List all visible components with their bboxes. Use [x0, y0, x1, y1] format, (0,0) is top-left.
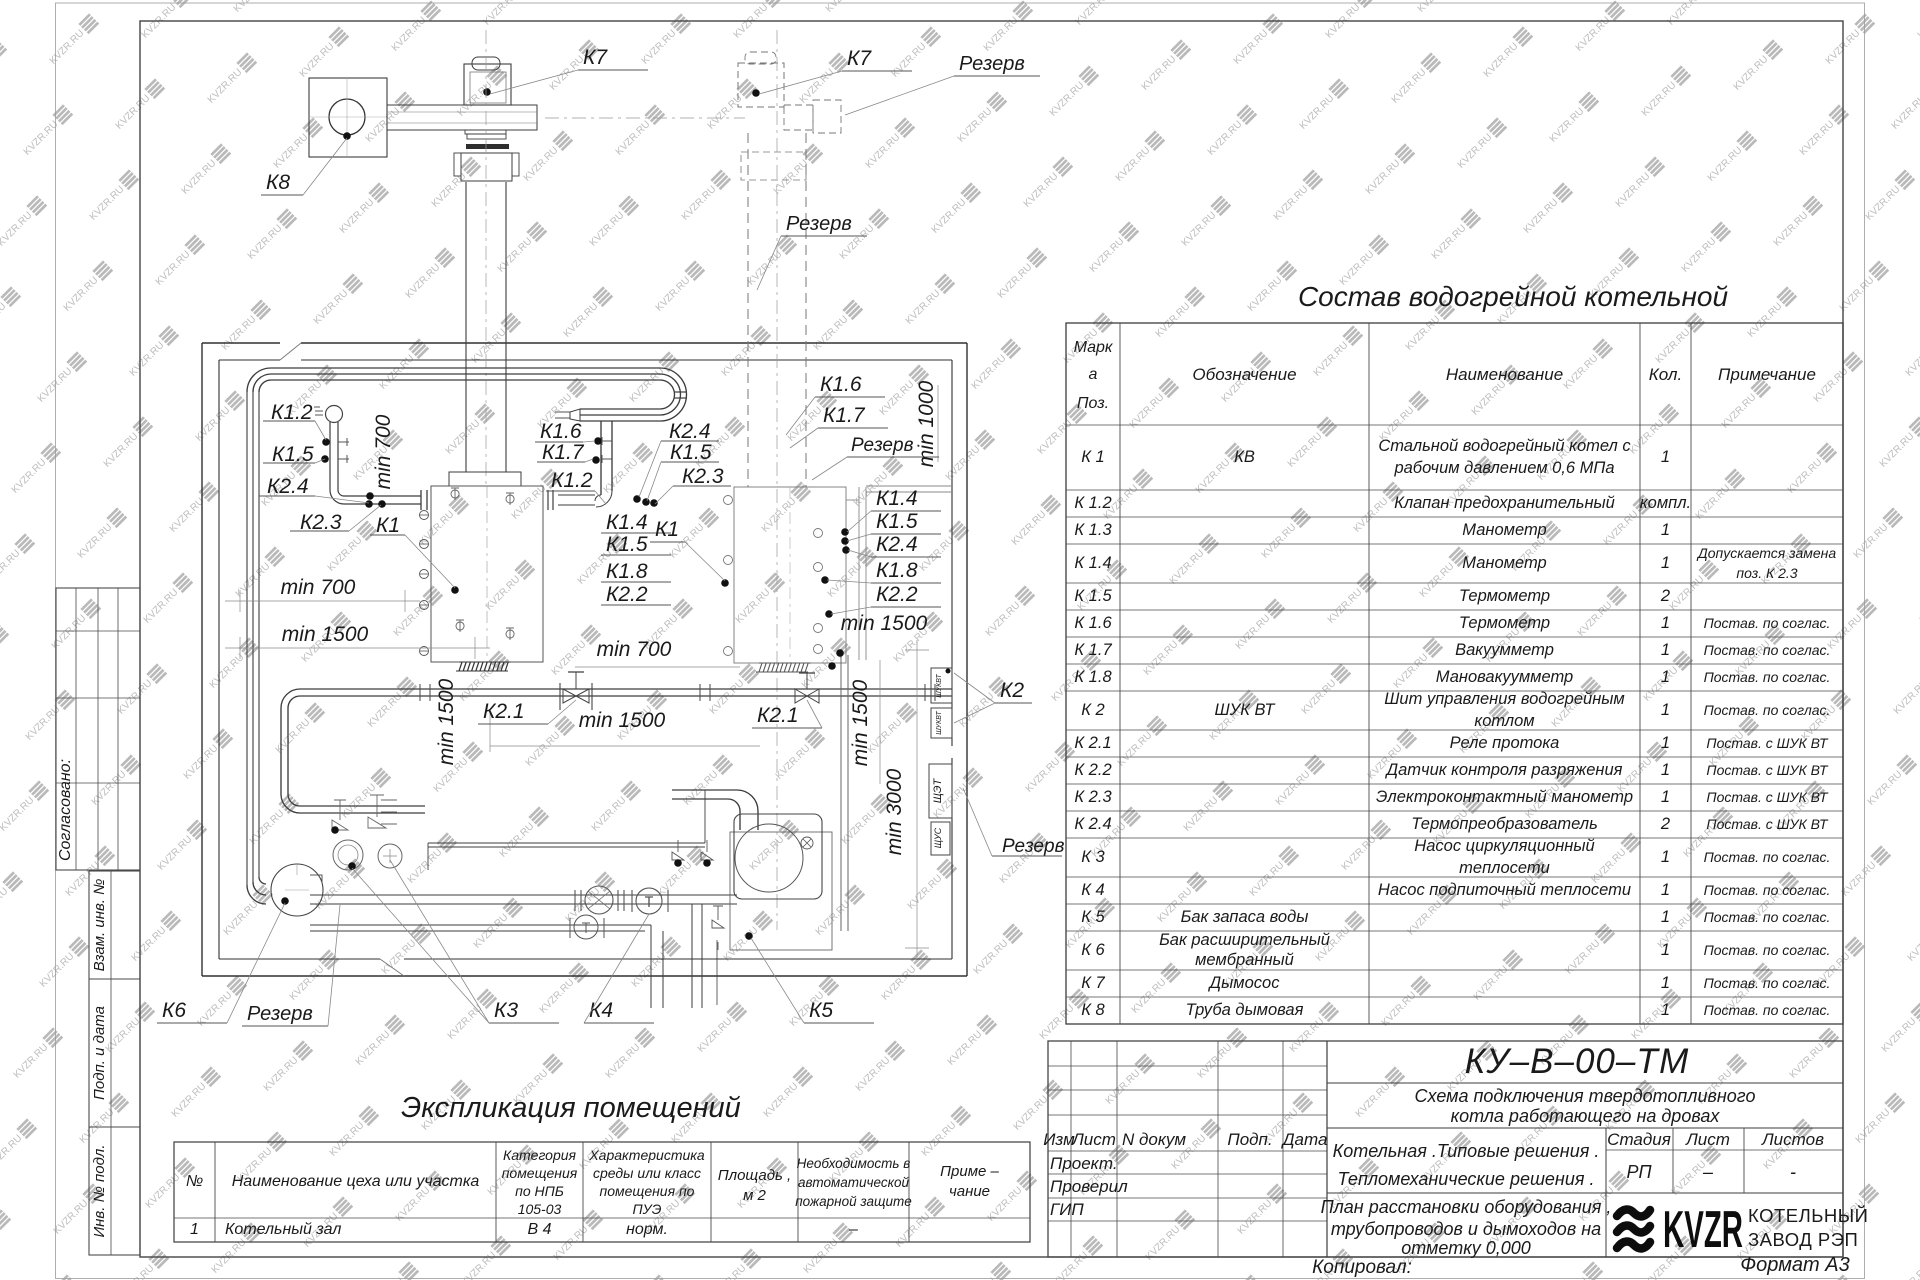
svg-text:Поз.: Поз. [1077, 395, 1109, 412]
svg-text:К 6: К 6 [1081, 941, 1105, 959]
svg-text:К5: К5 [809, 999, 833, 1022]
svg-text:К 1.5: К 1.5 [1074, 587, 1112, 605]
svg-text:К 5: К 5 [1081, 908, 1105, 926]
svg-text:К 1.7: К 1.7 [1074, 641, 1112, 659]
svg-text:Котельный зал: Котельный зал [225, 1221, 341, 1238]
svg-text:К 1.6: К 1.6 [1074, 614, 1112, 632]
svg-text:ЩЭТ: ЩЭТ [932, 777, 944, 803]
svg-text:1: 1 [1661, 701, 1670, 719]
svg-text:-: - [1790, 1162, 1796, 1182]
svg-text:помещения по: помещения по [600, 1183, 695, 1199]
svg-text:Проект.: Проект. [1050, 1154, 1118, 1173]
svg-text:Подп. и дата: Подп. и дата [91, 1006, 108, 1100]
svg-text:теплосети: теплосети [1459, 859, 1550, 877]
svg-text:–: – [1702, 1162, 1714, 1182]
svg-text:1: 1 [1661, 641, 1670, 659]
svg-text:К2.1: К2.1 [483, 700, 525, 723]
svg-text:Реле протока: Реле протока [1450, 734, 1560, 752]
svg-text:К4: К4 [589, 999, 613, 1022]
svg-text:Согласовано:: Согласовано: [57, 759, 74, 861]
svg-text:К2.1: К2.1 [757, 704, 799, 727]
svg-text:Экспликация помещений: Экспликация помещений [401, 1092, 741, 1124]
svg-text:Наименование: Наименование [1446, 365, 1563, 384]
svg-text:К1.8: К1.8 [876, 559, 918, 582]
svg-text:Лист: Лист [1685, 1130, 1730, 1149]
svg-text:К1.6: К1.6 [540, 420, 582, 443]
svg-text:1: 1 [1661, 908, 1670, 926]
svg-text:Тепломеханические решения .: Тепломеханические решения . [1338, 1169, 1595, 1189]
svg-text:К2.2: К2.2 [606, 583, 648, 606]
svg-text:Постав. по соглас.: Постав. по соглас. [1704, 975, 1831, 991]
svg-text:Постав. по соглас.: Постав. по соглас. [1704, 849, 1831, 865]
svg-text:1: 1 [1661, 448, 1670, 466]
svg-text:Постав. по соглас.: Постав. по соглас. [1704, 669, 1831, 685]
svg-text:ШУКВТ: ШУКВТ [936, 711, 943, 735]
svg-text:мембранный: мембранный [1195, 951, 1294, 969]
svg-text:Схема подключения твердотоплив: Схема подключения твердотопливного [1415, 1086, 1756, 1106]
svg-text:К1.5: К1.5 [606, 533, 648, 556]
svg-text:ЗАВОД РЭП: ЗАВОД РЭП [1748, 1229, 1858, 1250]
svg-text:KVZR: KVZR [1663, 1201, 1743, 1259]
svg-text:Бак запаса воды: Бак запаса воды [1181, 908, 1309, 926]
svg-text:min 1500: min 1500 [579, 709, 666, 732]
svg-text:Резерв: Резерв [247, 1003, 313, 1025]
svg-text:2: 2 [1660, 587, 1670, 605]
svg-text:чание: чание [949, 1183, 990, 1200]
svg-text:1: 1 [1661, 881, 1670, 899]
svg-text:К1.5: К1.5 [876, 510, 918, 533]
svg-text:КУ–В–00–ТМ: КУ–В–00–ТМ [1465, 1042, 1690, 1081]
svg-text:Постав. по соглас.: Постав. по соглас. [1704, 882, 1831, 898]
svg-text:трубопроводов и дымоходов на: трубопроводов и дымоходов на [1331, 1219, 1601, 1239]
svg-text:К6: К6 [162, 999, 186, 1022]
svg-text:Стадия: Стадия [1607, 1130, 1671, 1149]
svg-text:Манометр: Манометр [1462, 521, 1546, 539]
svg-text:Резерв: Резерв [1002, 836, 1065, 857]
svg-text:1: 1 [1661, 554, 1670, 572]
svg-text:105-03: 105-03 [518, 1201, 562, 1217]
svg-text:Обозначение: Обозначение [1192, 365, 1296, 384]
svg-text:отметку 0,000: отметку 0,000 [1401, 1238, 1531, 1258]
svg-text:а: а [1089, 366, 1098, 383]
svg-text:Листов: Листов [1761, 1130, 1824, 1149]
svg-text:К1: К1 [376, 514, 400, 537]
svg-text:котла работающего на дровах: котла работающего на дровах [1451, 1106, 1721, 1126]
svg-text:котлом: котлом [1474, 712, 1534, 730]
svg-text:Постав. по соглас.: Постав. по соглас. [1704, 702, 1831, 718]
svg-text:Резерв: Резерв [786, 213, 852, 235]
svg-text:К7: К7 [583, 46, 608, 69]
svg-text:Постав. с ШУК ВТ: Постав. с ШУК ВТ [1706, 816, 1829, 832]
svg-text:Площадь ,: Площадь , [718, 1167, 791, 1184]
svg-text:Инв. № подл.: Инв. № подл. [91, 1144, 108, 1237]
svg-text:К1.2: К1.2 [551, 469, 593, 492]
svg-text:автоматической: автоматической [798, 1175, 909, 1190]
svg-text:К3: К3 [494, 999, 518, 1022]
svg-text:К 2: К 2 [1081, 701, 1105, 719]
svg-text:min 3000: min 3000 [883, 768, 906, 855]
svg-text:К 8: К 8 [1081, 1001, 1105, 1019]
svg-text:ГИП: ГИП [1050, 1200, 1084, 1219]
svg-text:1: 1 [1661, 848, 1670, 866]
svg-text:компл.: компл. [1640, 494, 1691, 512]
svg-text:N докум: N докум [1122, 1130, 1186, 1149]
svg-text:К1.7: К1.7 [823, 404, 866, 427]
svg-text:min 700: min 700 [281, 576, 356, 599]
svg-text:Проверил: Проверил [1050, 1177, 1128, 1196]
svg-text:К 2.1: К 2.1 [1074, 734, 1111, 752]
svg-text:К 3: К 3 [1081, 848, 1105, 866]
svg-text:Формат А3: Формат А3 [1740, 1254, 1849, 1276]
svg-text:К 7: К 7 [1081, 974, 1105, 992]
svg-text:План расстановки оборудования: План расстановки оборудования , [1321, 1197, 1612, 1217]
svg-text:Дата: Дата [1281, 1130, 1328, 1149]
svg-text:Постав. по соглас.: Постав. по соглас. [1704, 942, 1831, 958]
svg-text:К 1.4: К 1.4 [1074, 554, 1111, 572]
svg-text:ЩУС: ЩУС [933, 827, 943, 848]
svg-text:min 1500: min 1500 [841, 612, 928, 635]
svg-text:по НПБ: по НПБ [515, 1183, 564, 1199]
svg-text:Насос циркуляционный: Насос циркуляционный [1414, 837, 1594, 855]
svg-text:Термометр: Термометр [1459, 614, 1550, 632]
svg-text:пожарной защите: пожарной защите [795, 1194, 912, 1209]
svg-text:2: 2 [1660, 815, 1670, 833]
svg-text:К1.6: К1.6 [820, 373, 862, 396]
svg-text:Котельная .Типовые решения .: Котельная .Типовые решения . [1333, 1141, 1600, 1161]
svg-text:Резерв: Резерв [851, 435, 914, 456]
svg-text:Категория: Категория [503, 1147, 577, 1163]
svg-text:min 1500: min 1500 [435, 678, 458, 765]
svg-text:ШУК ВТ: ШУК ВТ [1214, 701, 1276, 719]
svg-text:Шит управления водогрейным: Шит управления водогрейным [1384, 690, 1625, 708]
svg-text:Постав. с ШУК ВТ: Постав. с ШУК ВТ [1706, 735, 1829, 751]
svg-text:К2.4: К2.4 [669, 420, 711, 443]
svg-text:К 2.3: К 2.3 [1074, 788, 1112, 806]
svg-text:Труба дымовая: Труба дымовая [1186, 1001, 1304, 1019]
svg-text:Постав. по соглас.: Постав. по соглас. [1704, 615, 1831, 631]
svg-text:К 2.2: К 2.2 [1074, 761, 1111, 779]
svg-text:Постав. по соглас.: Постав. по соглас. [1704, 1002, 1831, 1018]
svg-text:1: 1 [1661, 614, 1670, 632]
svg-text:Датчик контроля разряжения: Датчик контроля разряжения [1385, 761, 1623, 779]
svg-text:К8: К8 [266, 171, 290, 194]
svg-text:Мановакуумметр: Мановакуумметр [1436, 668, 1573, 686]
svg-text:К7: К7 [847, 47, 872, 70]
svg-text:1: 1 [1661, 761, 1670, 779]
svg-text:Допускается замена: Допускается замена [1696, 545, 1836, 561]
svg-text:К 1.2: К 1.2 [1074, 494, 1111, 512]
svg-text:1: 1 [1661, 1001, 1670, 1019]
svg-text:К 2.4: К 2.4 [1074, 815, 1111, 833]
svg-text:среды или класс: среды или класс [593, 1165, 701, 1181]
svg-text:–: – [848, 1221, 858, 1238]
svg-text:помещения: помещения [502, 1165, 578, 1181]
svg-text:1: 1 [1661, 974, 1670, 992]
svg-text:min 700: min 700 [372, 414, 395, 489]
svg-text:Кол.: Кол. [1649, 365, 1682, 384]
svg-text:Электроконтактный манометр: Электроконтактный манометр [1376, 788, 1633, 806]
svg-text:К 1.3: К 1.3 [1074, 521, 1112, 539]
svg-text:min 1500: min 1500 [282, 623, 369, 646]
svg-text:min 1500: min 1500 [849, 679, 872, 766]
svg-text:рабочим давлением 0,6 МПа: рабочим давлением 0,6 МПа [1393, 459, 1614, 477]
svg-text:Постав. с ШУК ВТ: Постав. с ШУК ВТ [1706, 762, 1829, 778]
svg-text:К1.7: К1.7 [542, 441, 585, 464]
svg-text:min 700: min 700 [597, 638, 672, 661]
svg-text:Марк: Марк [1074, 339, 1114, 356]
svg-text:Наименование цеха или участка: Наименование цеха или участка [232, 1173, 480, 1190]
svg-text:К1.4: К1.4 [876, 487, 918, 510]
svg-text:Постав. по соглас.: Постав. по соглас. [1704, 642, 1831, 658]
svg-text:Взам. инв. №: Взам. инв. № [91, 879, 108, 972]
svg-text:м 2: м 2 [743, 1187, 766, 1204]
svg-text:Вакуумметр: Вакуумметр [1455, 641, 1554, 659]
svg-text:Копировал:: Копировал: [1312, 1257, 1412, 1278]
svg-text:К2.3: К2.3 [682, 465, 724, 488]
svg-text:К2.4: К2.4 [876, 533, 918, 556]
svg-text:Насос подпиточный теплосети: Насос подпиточный теплосети [1378, 881, 1631, 899]
svg-text:К1: К1 [655, 518, 679, 541]
svg-text:Изм: Изм [1043, 1130, 1075, 1149]
svg-text:Бак расширительный: Бак расширительный [1159, 931, 1330, 949]
svg-text:Термопреобразователь: Термопреобразователь [1411, 815, 1598, 833]
svg-text:Стальной водогрейный котел с: Стальной водогрейный котел с [1378, 437, 1631, 455]
svg-text:поз. К 2.3: поз. К 2.3 [1736, 565, 1797, 581]
svg-text:1: 1 [1661, 788, 1670, 806]
svg-text:К1.8: К1.8 [606, 560, 648, 583]
svg-text:К2.4: К2.4 [267, 475, 309, 498]
svg-text:К2.2: К2.2 [876, 583, 918, 606]
svg-text:Состав водогрейной котельной: Состав водогрейной котельной [1298, 281, 1729, 312]
svg-text:Манометр: Манометр [1462, 554, 1546, 572]
svg-text:1: 1 [1661, 734, 1670, 752]
svg-text:1: 1 [190, 1221, 199, 1238]
svg-text:1: 1 [1661, 521, 1670, 539]
svg-text:Подп.: Подп. [1227, 1130, 1272, 1149]
svg-text:1: 1 [1661, 941, 1670, 959]
svg-text:№: № [186, 1173, 203, 1190]
svg-text:ПУЭ: ПУЭ [633, 1201, 662, 1217]
svg-text:К2: К2 [1000, 679, 1024, 702]
svg-text:Необходимость в: Необходимость в [797, 1156, 911, 1171]
svg-text:Клапан предохранительный: Клапан предохранительный [1394, 494, 1615, 512]
svg-text:Резерв: Резерв [959, 53, 1025, 75]
svg-text:Постав. с ШУК ВТ: Постав. с ШУК ВТ [1706, 789, 1829, 805]
svg-text:К 1: К 1 [1081, 448, 1105, 466]
svg-text:Дымосос: Дымосос [1208, 974, 1281, 992]
svg-text:Лист: Лист [1071, 1130, 1116, 1149]
svg-text:Характеристика: Характеристика [588, 1147, 705, 1163]
svg-text:В 4: В 4 [527, 1221, 551, 1238]
svg-text:КВ: КВ [1234, 448, 1255, 466]
svg-text:КОТЕЛЬНЫЙ: КОТЕЛЬНЫЙ [1748, 1205, 1868, 1226]
svg-text:Термометр: Термометр [1459, 587, 1550, 605]
svg-text:min 1000: min 1000 [915, 380, 938, 467]
svg-text:норм.: норм. [626, 1221, 668, 1238]
svg-text:Приме –: Приме – [940, 1163, 999, 1180]
svg-text:Примечание: Примечание [1718, 365, 1816, 384]
svg-text:К1.5: К1.5 [670, 441, 712, 464]
svg-text:РП: РП [1626, 1162, 1652, 1182]
svg-text:К 1.8: К 1.8 [1074, 668, 1112, 686]
svg-text:1: 1 [1661, 668, 1670, 686]
svg-text:К 4: К 4 [1081, 881, 1105, 899]
svg-text:К1.4: К1.4 [606, 511, 648, 534]
svg-text:Постав. по соглас.: Постав. по соглас. [1704, 909, 1831, 925]
svg-text:ШУКВТ: ШУКВТ [936, 674, 943, 698]
